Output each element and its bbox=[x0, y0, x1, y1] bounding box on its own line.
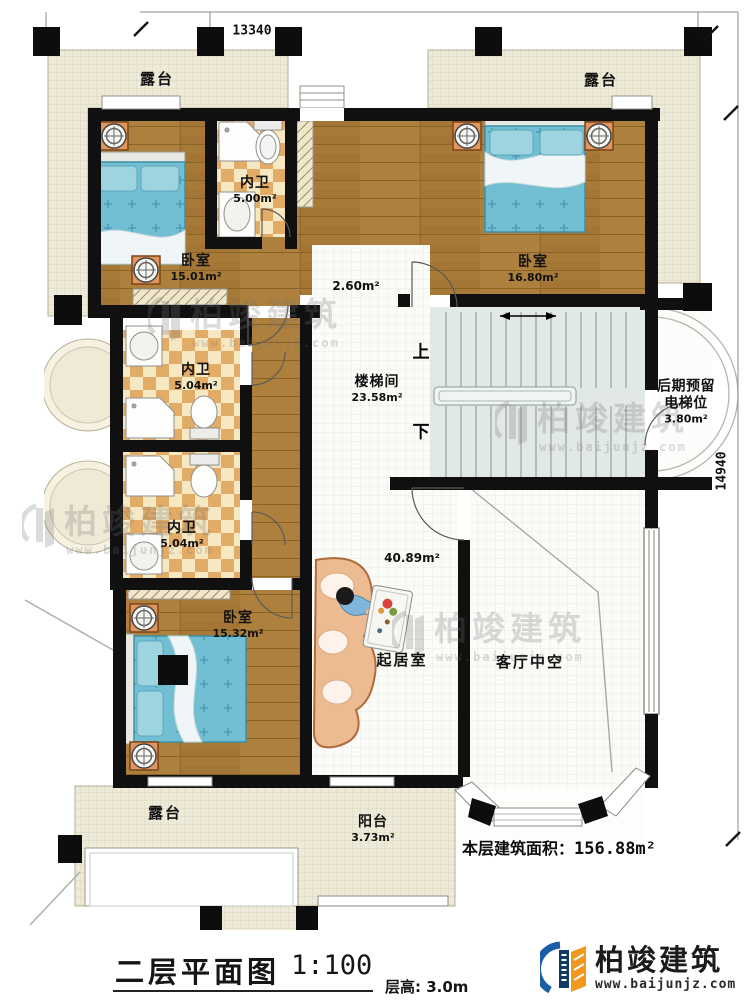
room-label-bath-mid: 内卫 5.04m² bbox=[174, 362, 217, 392]
room-label-stairwell: 楼梯间 23.58m² bbox=[351, 374, 402, 404]
room-label-terrace-tr: 露台 bbox=[584, 71, 618, 89]
title-block: 二层平面图 1:100 层高: 3.0m 柏竣建筑 www.baijunjz.c… bbox=[0, 938, 750, 1005]
company-logo: 柏竣建筑 www.baijunjz.com bbox=[540, 938, 736, 998]
room-label-terrace-tl: 露台 bbox=[140, 70, 174, 88]
floorplan-page: 13340 14940 露台 露台 内卫 5.00m² 卧室 15.01m² 卧… bbox=[0, 0, 750, 1005]
floor-area-note-label: 本层建筑面积： bbox=[462, 839, 574, 858]
room-label-terrace-bl: 露台 bbox=[148, 804, 182, 822]
room-label-bedroom-tr: 卧室 16.80m² bbox=[507, 254, 558, 284]
bed-top-left bbox=[95, 152, 185, 264]
dimension-right: 14940 bbox=[715, 451, 730, 490]
room-label-bedroom-tl: 卧室 15.01m² bbox=[170, 253, 221, 283]
company-logo-icon bbox=[540, 938, 588, 998]
dimension-top: 13340 bbox=[232, 24, 271, 39]
drawing-title: 二层平面图 bbox=[115, 949, 280, 991]
room-label-bedroom-bl: 卧室 15.32m² bbox=[212, 610, 263, 640]
bed-bottom-left bbox=[124, 634, 246, 744]
room-label-living: 起居室 bbox=[376, 651, 427, 669]
floor-plan-drawing bbox=[0, 0, 750, 930]
stairs-up-label: 上 bbox=[413, 338, 430, 363]
room-label-elevator: 后期预留 电梯位 3.80m² bbox=[657, 379, 715, 426]
company-website: www.baijunjz.com bbox=[595, 978, 736, 991]
living-area-value: 40.89m² bbox=[384, 551, 440, 565]
floor-area-note: 本层建筑面积：156.88m² bbox=[462, 835, 656, 859]
room-label-bath-low: 内卫 5.04m² bbox=[160, 520, 203, 550]
room-label-bath-top: 内卫 5.00m² bbox=[233, 175, 276, 205]
drawing-scale: 1:100 bbox=[291, 950, 372, 981]
bed-top-right bbox=[485, 116, 585, 232]
room-label-balcony: 阳台 3.73m² bbox=[351, 814, 394, 844]
room-label-void: 客厅中空 bbox=[496, 653, 564, 671]
floor-area-note-value: 156.88m² bbox=[574, 839, 656, 859]
floor-height-label: 层高: 3.0m bbox=[385, 976, 468, 997]
room-label-hall: 2.60m² bbox=[332, 279, 379, 293]
company-name: 柏竣建筑 bbox=[595, 946, 736, 975]
title-underline bbox=[113, 990, 373, 992]
stairs-down-label: 下 bbox=[413, 418, 430, 443]
